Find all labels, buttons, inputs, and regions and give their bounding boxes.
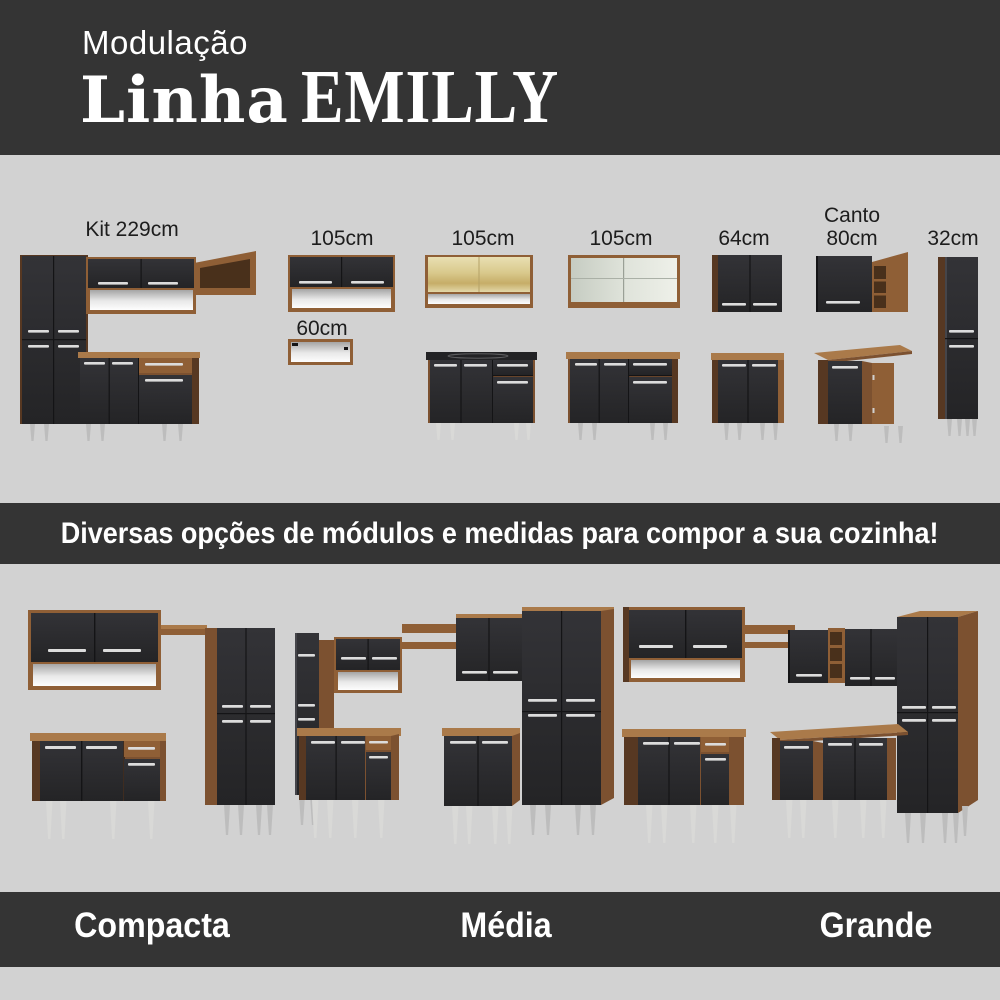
label-aereo-deslizante-105cm: 105cm bbox=[589, 227, 652, 250]
module-aereo-vidro-105cm bbox=[425, 255, 533, 308]
label-canto-line1: Canto bbox=[824, 204, 880, 227]
banner-text: Diversas opções de módulos e medidas par… bbox=[61, 517, 939, 551]
label-aereo-vidro-105cm: 105cm bbox=[451, 227, 514, 250]
label-canto-line2: 80cm bbox=[824, 227, 880, 250]
label-kit-229cm: Kit 229cm bbox=[85, 218, 178, 241]
label-aereo-64cm: 64cm bbox=[718, 227, 769, 250]
kit-label-compacta: Compacta bbox=[74, 906, 230, 946]
kit-grande bbox=[622, 607, 978, 843]
page-title: LinhaEMILLY bbox=[80, 54, 608, 141]
module-balcao-105cm bbox=[566, 352, 680, 440]
module-nicho-60cm bbox=[288, 339, 353, 365]
module-aereo-deslizante-105cm bbox=[568, 255, 680, 308]
module-balcao-pia-105cm bbox=[426, 352, 537, 440]
label-aereo-105cm: 105cm bbox=[310, 227, 373, 250]
module-paneleiro-32cm bbox=[938, 257, 978, 436]
module-kit-229cm bbox=[20, 251, 256, 441]
kit-label-media: Média bbox=[460, 906, 551, 946]
module-aereo-64cm bbox=[712, 255, 782, 312]
kit-media bbox=[295, 607, 614, 844]
title-emilly: EMILLY bbox=[301, 54, 559, 141]
label-paneleiro-32cm: 32cm bbox=[927, 227, 978, 250]
label-canto-80cm: Canto 80cm bbox=[824, 204, 880, 250]
poster: Modulação LinhaEMILLY Diversas opções de… bbox=[0, 0, 1000, 1000]
label-nicho-60cm: 60cm bbox=[296, 317, 347, 340]
kit-label-grande: Grande bbox=[820, 906, 933, 946]
module-balcao-canto-80cm bbox=[814, 345, 912, 443]
header-band: Modulação LinhaEMILLY bbox=[0, 0, 1000, 155]
kit-compacta bbox=[28, 610, 275, 839]
module-aereo-105cm bbox=[288, 255, 395, 312]
module-aereo-canto-80cm bbox=[816, 252, 908, 312]
module-balcao-64cm bbox=[711, 353, 784, 440]
banner: Diversas opções de módulos e medidas par… bbox=[0, 503, 1000, 564]
title-linha: Linha bbox=[80, 63, 289, 138]
